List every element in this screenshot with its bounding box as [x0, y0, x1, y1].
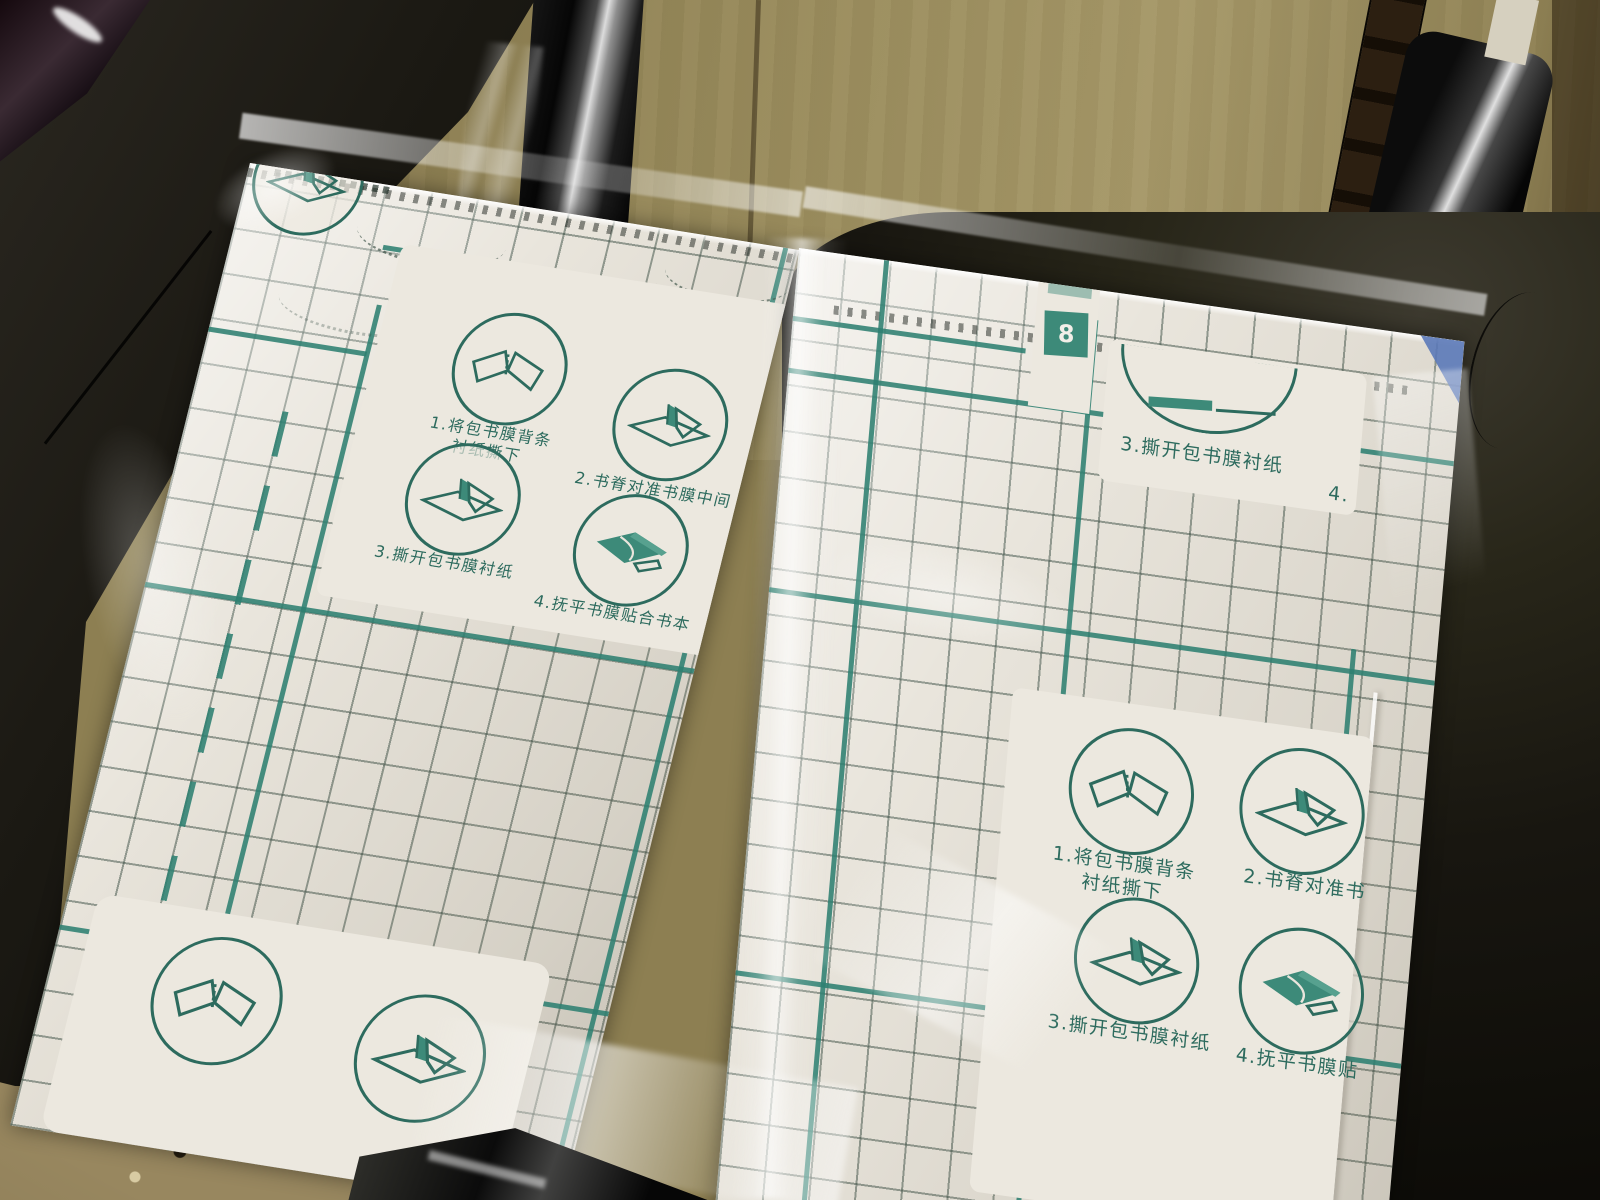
- grid-thick-vline: [796, 260, 889, 1200]
- corner-sticker: [1415, 335, 1464, 403]
- grid-thick-hline: [769, 587, 1435, 686]
- partial-step4-caption: 4.: [1327, 482, 1350, 509]
- size-marker: 8: [1044, 310, 1089, 357]
- book-film-right-page: 8 3.撕开包书膜衬纸 4. 1.将包书膜背条衬纸撕下 2.书脊对准书: [711, 248, 1465, 1200]
- photo-scene: 1.将包书膜背条衬纸撕下 2.书脊对准书膜中间 3.撕开包书膜衬纸 4.抚平书膜…: [0, 0, 1600, 1200]
